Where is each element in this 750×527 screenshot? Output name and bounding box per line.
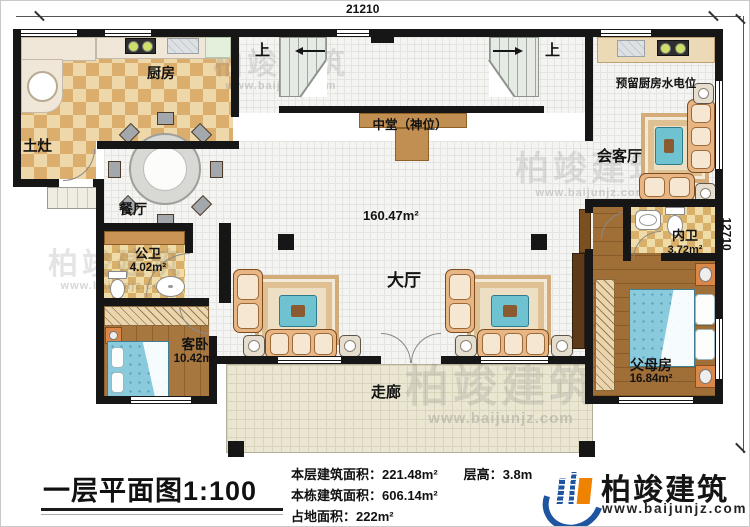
stat-line: 占地面积：222m² <box>291 506 532 527</box>
toilet-tank <box>665 207 685 215</box>
top-dimension-line <box>16 16 741 17</box>
wall-segment <box>341 356 381 364</box>
end-table <box>551 335 573 357</box>
sofa-cushion <box>669 177 690 197</box>
stair-arrowhead <box>295 47 303 55</box>
sofa-cushion <box>270 333 289 355</box>
plan-title-text: 一层平面图 <box>43 476 183 506</box>
wall-segment <box>93 179 104 187</box>
coffee-table <box>279 295 317 327</box>
room-label-kitchen: 厨房 <box>147 63 175 83</box>
wall-segment <box>13 37 21 187</box>
nightstand <box>695 263 716 286</box>
sofa <box>265 329 337 359</box>
dining-chair <box>210 161 223 178</box>
wall-segment <box>97 141 239 149</box>
wall-segment <box>585 396 619 404</box>
stat-value: 606.14m² <box>382 488 438 503</box>
room-label-public-bath: 公卫 4.02m² <box>113 247 183 275</box>
wall-segment <box>185 231 193 253</box>
wall-segment <box>369 29 601 37</box>
sofa-cushion <box>644 177 665 197</box>
room-area: 10.42m² <box>174 353 217 366</box>
stat-value: 3.8m <box>503 467 533 482</box>
title-underline-thin <box>41 514 283 515</box>
wall-segment <box>96 396 131 404</box>
wall-segment <box>96 223 193 231</box>
stair-arrowhead <box>515 47 523 55</box>
wall-segment <box>585 199 715 207</box>
public-bath-counter <box>104 231 185 245</box>
stat-value: 221.48m² <box>382 467 438 482</box>
burner-icon <box>675 43 686 54</box>
room-label-dining: 餐厅 <box>119 199 147 219</box>
window <box>131 396 191 404</box>
plan-title: 一层平面图1:100 <box>43 469 257 508</box>
bed-pillow <box>111 372 124 393</box>
sofa-cushion <box>691 127 711 146</box>
burner-icon <box>660 43 671 54</box>
window <box>337 29 369 37</box>
column <box>228 441 244 457</box>
top-dimension-value: 21210 <box>343 2 382 16</box>
stat-label: 层高： <box>464 467 503 482</box>
sofa-cushion <box>504 333 523 355</box>
room-label-parents-room: 父母房 16.84m² <box>603 357 699 386</box>
stove-pot <box>27 71 58 102</box>
kitchen-sink <box>167 38 199 54</box>
sofa-cushion <box>314 333 333 355</box>
brand-url: www.baijunjz.com <box>602 501 747 516</box>
coffee-table <box>491 295 529 327</box>
wall-segment <box>371 37 394 43</box>
floor-plan-canvas: 21210 12710 柏竣建筑 www.baijunjz.com 柏竣建筑 w… <box>0 0 750 527</box>
stat-label: 占地面积： <box>291 509 356 524</box>
window <box>105 29 151 37</box>
room-label-guest-room: 客卧 10.42m² <box>151 337 239 366</box>
wall-segment <box>191 396 217 404</box>
window <box>715 81 723 169</box>
room-label-hall: 大厅 <box>387 266 421 291</box>
dining-chair <box>108 161 121 178</box>
sofa-group <box>231 265 361 361</box>
fridge <box>205 37 231 58</box>
sofa <box>445 269 475 333</box>
window <box>619 396 693 404</box>
sofa <box>687 99 715 173</box>
bed-pillow <box>695 329 715 360</box>
room-area: 4.02m² <box>130 262 166 275</box>
door-panel <box>579 209 591 253</box>
end-table <box>339 335 361 357</box>
room-label-corridor: 走廊 <box>371 381 401 402</box>
burner-icon <box>142 41 153 52</box>
stair-arrow <box>301 50 325 52</box>
window <box>601 29 651 37</box>
wall-segment <box>693 396 723 404</box>
sofa-cushion <box>237 303 259 329</box>
sofa-cushion <box>691 104 711 123</box>
bed-pillow <box>111 347 124 368</box>
tv-cabinet <box>572 253 585 349</box>
wall-segment <box>96 187 104 404</box>
wall-segment <box>585 207 593 213</box>
wall-segment <box>623 207 631 261</box>
sofa-cushion <box>237 274 259 300</box>
bed-blanket-fold <box>630 290 694 366</box>
end-table <box>243 335 265 357</box>
corridor-floor <box>226 364 593 453</box>
stat-value: 222m² <box>356 509 394 524</box>
dimension-tick <box>735 443 745 453</box>
wall-segment <box>13 179 59 187</box>
parents-bed <box>629 289 695 367</box>
column <box>531 234 547 250</box>
room-area: 16.84m² <box>630 373 673 386</box>
sofa-group <box>443 265 573 361</box>
room-label-inner-bath: 内卫 3.72m² <box>649 229 721 257</box>
window <box>481 356 548 364</box>
room-name: 公卫 <box>135 247 161 262</box>
dining-chair <box>157 112 174 125</box>
right-dimension-line <box>743 16 744 453</box>
column <box>278 234 294 250</box>
room-name: 父母房 <box>630 357 672 373</box>
sofa-cushion <box>449 274 471 300</box>
wall-segment <box>651 29 723 37</box>
bed-pillow <box>695 294 715 325</box>
column <box>579 441 595 457</box>
stat-label: 本栋建筑面积： <box>291 488 382 503</box>
stair-up-label: 上 <box>255 39 270 60</box>
sofa <box>639 173 695 201</box>
wall-segment <box>279 106 544 113</box>
burner-icon <box>128 41 139 52</box>
sofa-cushion <box>292 333 311 355</box>
room-label-reception: 会客厅 <box>597 145 642 166</box>
wall-segment <box>96 298 209 306</box>
wall-segment <box>715 29 723 81</box>
wall-segment <box>585 249 593 404</box>
stat-label: 本层建筑面积： <box>291 467 382 482</box>
room-area: 3.72m² <box>668 244 703 257</box>
sofa-cushion <box>482 333 501 355</box>
sofa-cushion <box>691 150 711 169</box>
wall-segment <box>548 356 593 364</box>
hall-area-label: 160.47m² <box>363 208 419 223</box>
wall-segment <box>219 223 231 303</box>
stair-up-label: 上 <box>545 39 560 60</box>
room-name: 内卫 <box>672 229 698 244</box>
wall-segment <box>441 356 481 364</box>
sofa <box>233 269 263 333</box>
wall-segment <box>231 37 239 117</box>
reserved-cooktop <box>657 40 689 56</box>
wall-segment <box>585 37 593 141</box>
label-reserved-kitchen: 预留厨房水电位 <box>597 75 715 91</box>
stair-arrow <box>493 50 517 52</box>
room-label-shrine: 中堂（神位） <box>353 114 467 133</box>
earth-stove-counter <box>21 37 96 61</box>
cooktop <box>125 38 156 54</box>
logo-building-orange-icon <box>577 478 593 504</box>
reception-sofa-group <box>637 85 719 207</box>
toilet-bowl <box>110 279 125 299</box>
stat-line: 本层建筑面积：221.48m²层高：3.8m <box>291 464 532 485</box>
window <box>715 319 723 379</box>
end-table <box>455 335 477 357</box>
entry-step <box>47 187 97 209</box>
window <box>278 356 341 364</box>
room-name: 客卧 <box>182 337 209 353</box>
room-label-earth-stove: 土灶 <box>23 135 52 156</box>
title-underline <box>41 508 283 511</box>
coffee-table <box>655 127 683 165</box>
sofa <box>477 329 549 359</box>
brand-logo-icon <box>542 462 600 524</box>
wall-segment <box>77 29 105 37</box>
area-statistics: 本层建筑面积：221.48m²层高：3.8m 本栋建筑面积：606.14m² 占… <box>291 464 532 527</box>
wall-segment <box>151 29 337 37</box>
sofa-cushion <box>449 303 471 329</box>
plan-scale: 1:100 <box>183 476 257 506</box>
washbasin <box>635 210 661 230</box>
reserved-sink <box>617 40 645 57</box>
sofa-cushion <box>526 333 545 355</box>
wall-segment <box>13 29 21 37</box>
stat-line: 本栋建筑面积：606.14m² <box>291 485 532 506</box>
window <box>21 29 77 37</box>
reserved-kitchen-counter <box>597 37 715 63</box>
